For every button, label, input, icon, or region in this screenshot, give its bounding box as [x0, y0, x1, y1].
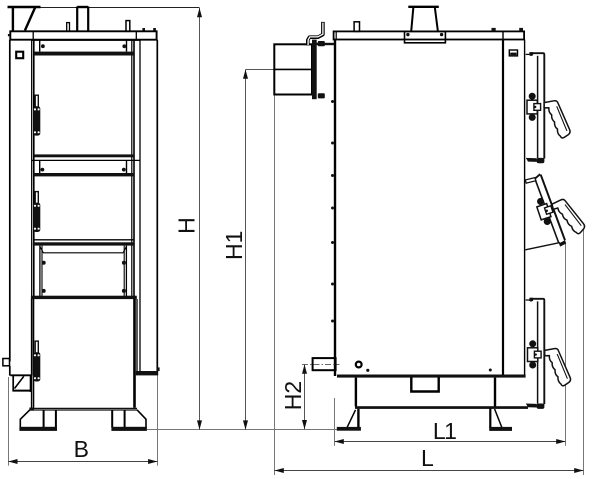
svg-text:H2: H2 — [280, 381, 306, 410]
svg-text:H1: H1 — [221, 231, 247, 260]
svg-text:H: H — [174, 217, 200, 234]
svg-text:B: B — [74, 436, 89, 462]
svg-text:L: L — [421, 445, 434, 471]
svg-text:L1: L1 — [433, 418, 456, 444]
